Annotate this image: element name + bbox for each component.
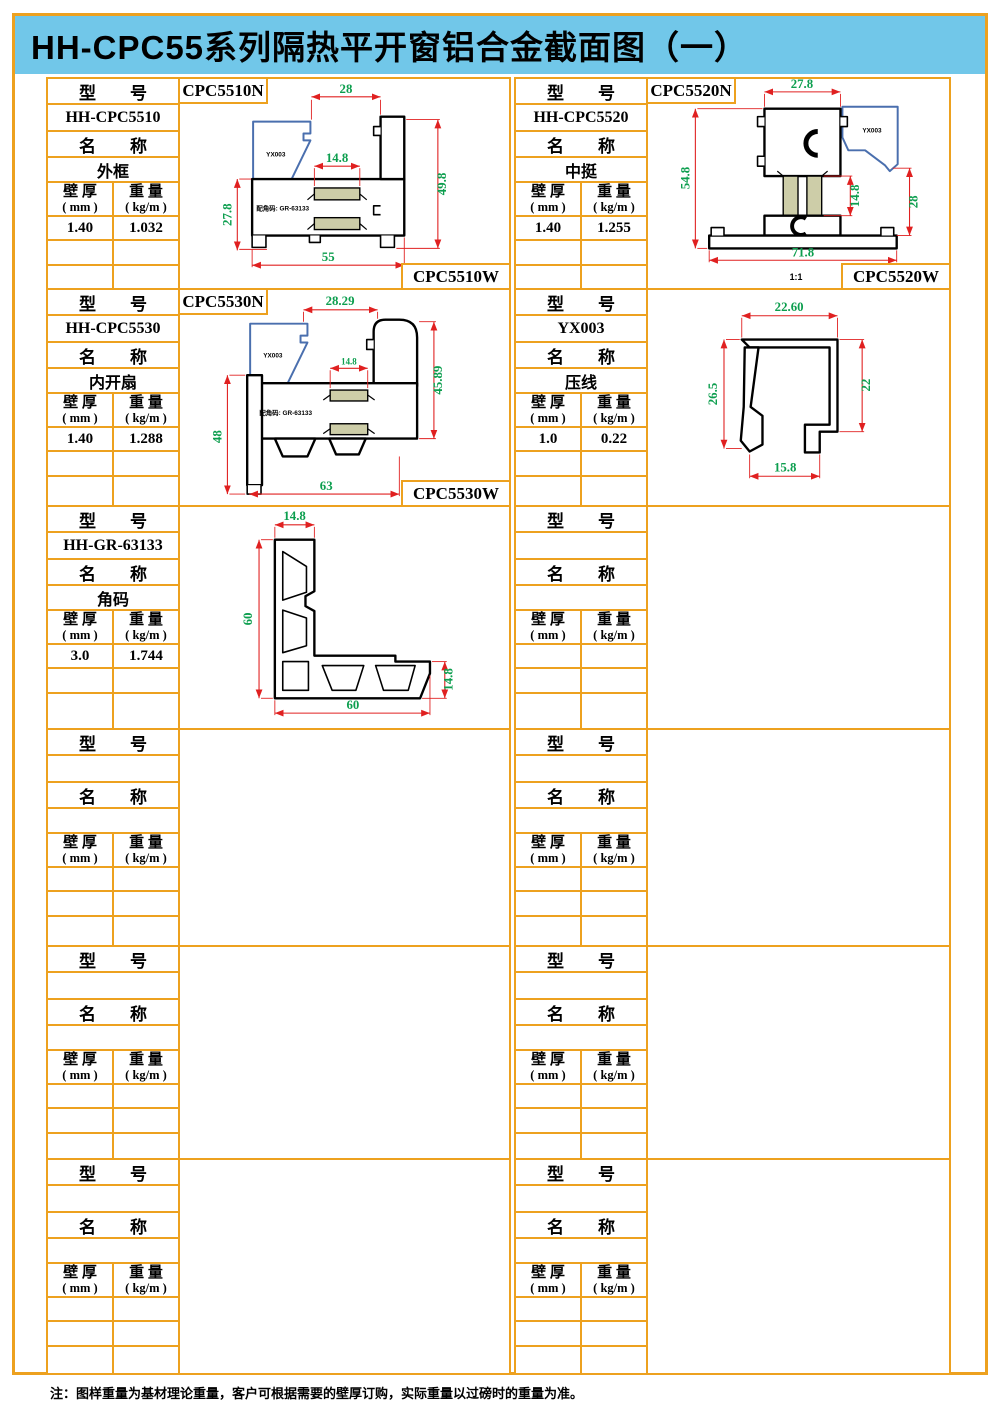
- dim-right: 49.8: [435, 173, 449, 196]
- drawing-label-n: CPC5510N: [180, 79, 268, 104]
- model-value: HH-CPC5510: [48, 105, 178, 132]
- thickness-header: 壁 厚( mm ): [48, 834, 112, 866]
- thickness-header: 壁 厚( mm ): [516, 1051, 580, 1083]
- name-value: [48, 1239, 178, 1264]
- values-row: 1.0 0.22: [516, 428, 646, 452]
- empty-row: [516, 1109, 646, 1134]
- drawing-label-n: CPC5520N: [648, 79, 736, 104]
- page-title: HH-CPC55系列隔热平开窗铝合金截面图（一）: [15, 21, 748, 69]
- drawing-area: CPC5530N CPC5530W: [180, 290, 509, 505]
- weight-header: 重 量( kg/m ): [580, 834, 646, 866]
- cross-section-cpc5510: YX003 配角码: GR-63133 28 14.8: [180, 79, 509, 288]
- name-header: 名 称: [516, 132, 646, 158]
- empty-row: [516, 477, 646, 505]
- name-header: 名 称: [48, 1000, 178, 1026]
- model-value: [48, 756, 178, 783]
- profile-outline: YX003 配角码: GR-63133: [252, 117, 404, 248]
- model-header: 型 号: [48, 290, 178, 316]
- name-value: 内开扇: [48, 369, 178, 394]
- thickness-header: 壁 厚( mm ): [516, 611, 580, 643]
- weight-header: 重 量( kg/m ): [580, 394, 646, 426]
- empty-row: [516, 266, 646, 288]
- dim-left: 27.8: [220, 203, 234, 226]
- name-value: [48, 809, 178, 834]
- empty-row: [48, 266, 178, 288]
- footer-note: 注：图样重量为基材理论重量，客户可根据需要的壁厚订购，实际重量以过磅时的重量为准…: [50, 1383, 583, 1402]
- dim-mid: 14.8: [848, 185, 862, 208]
- model-value: HH-GR-63133: [48, 533, 178, 560]
- drawing-area: CPC5520N CPC5520W: [648, 79, 949, 288]
- drawing-area: 14.8 60 14.8 60: [180, 507, 509, 728]
- profile-table: 型 号 HH-CPC5510 名 称 外框 壁 厚( mm ) 重 量( kg/…: [46, 77, 951, 1375]
- info-panel: 型 号 名 称 壁 厚( mm ) 重 量( kg/m ): [516, 507, 648, 728]
- name-header: 名 称: [48, 1213, 178, 1239]
- dim-bottom: 63: [320, 479, 333, 493]
- empty-row: [516, 1347, 646, 1373]
- model-value: [516, 533, 646, 560]
- dim-top: 28: [340, 82, 353, 96]
- profile-cell-empty: 型 号 名 称 壁 厚( mm ) 重 量( kg/m ): [46, 728, 511, 947]
- weight-header: 重 量( kg/m ): [112, 1051, 178, 1083]
- values-row: [516, 868, 646, 892]
- name-header: 名 称: [516, 783, 646, 809]
- title-bar: HH-CPC55系列隔热平开窗铝合金截面图（一）: [15, 16, 985, 74]
- bead-model-annotation: YX003: [266, 151, 286, 158]
- empty-row: [48, 694, 178, 728]
- units-header-row: 壁 厚( mm ) 重 量( kg/m ): [516, 834, 646, 868]
- name-header: 名 称: [48, 343, 178, 369]
- empty-row: [516, 1134, 646, 1158]
- units-header-row: 壁 厚( mm ) 重 量( kg/m ): [48, 834, 178, 868]
- units-header-row: 壁 厚( mm ) 重 量( kg/m ): [48, 394, 178, 428]
- name-value: 中挺: [516, 158, 646, 183]
- thickness-header: 壁 厚( mm ): [48, 1264, 112, 1296]
- thickness-value: 1.40: [48, 428, 112, 450]
- weight-header: 重 量( kg/m ): [112, 183, 178, 215]
- thickness-value: 1.0: [516, 428, 580, 450]
- model-header: 型 号: [48, 730, 178, 756]
- name-value: 压线: [516, 369, 646, 394]
- dim-right: 45.89: [431, 366, 445, 395]
- dim-left: 54.8: [678, 167, 692, 190]
- units-header-row: 壁 厚( mm ) 重 量( kg/m ): [48, 611, 178, 645]
- profile-cell-cpc5530: 型 号 HH-CPC5530 名 称 内开扇 壁 厚( mm ) 重 量( kg…: [46, 288, 511, 507]
- profile-outline: [275, 540, 430, 699]
- values-row: 3.0 1.744: [48, 645, 178, 669]
- corner-code-annotation: 配角码: GR-63133: [256, 204, 309, 213]
- dim-right: 28: [906, 195, 920, 208]
- model-header: 型 号: [516, 507, 646, 533]
- dim-top: 14.8: [283, 509, 305, 523]
- thickness-value: 1.40: [516, 217, 580, 239]
- thickness-header: 壁 厚( mm ): [516, 394, 580, 426]
- name-value: [516, 586, 646, 611]
- name-header: 名 称: [516, 560, 646, 586]
- units-header-row: 壁 厚( mm ) 重 量( kg/m ): [516, 611, 646, 645]
- info-panel: 型 号 HH-CPC5530 名 称 内开扇 壁 厚( mm ) 重 量( kg…: [48, 290, 180, 505]
- dimensions: 22.60 26.5 22 15.8: [706, 300, 873, 478]
- empty-row: [48, 477, 178, 505]
- info-panel: 型 号 HH-CPC5520 名 称 中挺 壁 厚( mm ) 重 量( kg/…: [516, 79, 648, 288]
- drawing-area: [648, 1160, 949, 1373]
- values-row: [516, 645, 646, 669]
- drawing-label-n: CPC5530N: [180, 290, 268, 315]
- model-header: 型 号: [516, 1160, 646, 1186]
- dim-top: 22.60: [775, 300, 804, 314]
- weight-value: 1.744: [112, 645, 178, 667]
- dim-left: 26.5: [706, 383, 720, 406]
- dim-mid: 14.8: [341, 356, 357, 366]
- profile-cell-cpc5520: 型 号 HH-CPC5520 名 称 中挺 壁 厚( mm ) 重 量( kg/…: [514, 77, 951, 290]
- cross-section-cpc5530: YX003 配角码: GR-63133 28.29 14.8: [180, 290, 509, 505]
- values-row: [48, 1085, 178, 1109]
- model-value: [516, 973, 646, 1000]
- name-header: 名 称: [48, 132, 178, 158]
- profile-cell-empty: 型 号 名 称 壁 厚( mm ) 重 量( kg/m ): [46, 1158, 511, 1375]
- weight-header: 重 量( kg/m ): [580, 183, 646, 215]
- empty-row: [48, 669, 178, 694]
- weight-header: 重 量( kg/m ): [112, 834, 178, 866]
- drawing-area: [180, 1160, 509, 1373]
- dim-mid: 14.8: [326, 151, 348, 165]
- cross-section-cpc5520: YX003 1:1 27.8 54.8 14.8: [648, 79, 949, 288]
- drawing-area: [648, 947, 949, 1158]
- weight-header: 重 量( kg/m ): [112, 1264, 178, 1296]
- profile-cell-empty: 型 号 名 称 壁 厚( mm ) 重 量( kg/m ): [514, 728, 951, 947]
- profile-cell-gr63133: 型 号 HH-GR-63133 名 称 角码 壁 厚( mm ) 重 量( kg…: [46, 505, 511, 730]
- values-row: [516, 1298, 646, 1322]
- model-header: 型 号: [48, 1160, 178, 1186]
- profile-cell-cpc5510: 型 号 HH-CPC5510 名 称 外框 壁 厚( mm ) 重 量( kg/…: [46, 77, 511, 290]
- empty-row: [516, 694, 646, 728]
- drawing-area: CPC5510N CPC5510W Y: [180, 79, 509, 288]
- empty-row: [516, 917, 646, 945]
- thickness-header: 壁 厚( mm ): [48, 394, 112, 426]
- weight-header: 重 量( kg/m ): [580, 1264, 646, 1296]
- values-row: 1.40 1.255: [516, 217, 646, 241]
- profile-outline: [741, 340, 838, 453]
- bead-model-annotation: YX003: [263, 352, 283, 359]
- name-value: 外框: [48, 158, 178, 183]
- empty-row: [48, 452, 178, 477]
- scale-annotation: 1:1: [790, 272, 803, 282]
- dim-left: 48: [211, 430, 225, 443]
- empty-row: [516, 1322, 646, 1347]
- catalog-page: HH-CPC55系列隔热平开窗铝合金截面图（一） 型 号 HH-CPC5510 …: [0, 0, 1000, 1415]
- model-value: [516, 756, 646, 783]
- name-value: 角码: [48, 586, 178, 611]
- thickness-header: 壁 厚( mm ): [48, 1051, 112, 1083]
- info-panel: 型 号 名 称 壁 厚( mm ) 重 量( kg/m ): [516, 730, 648, 945]
- model-value: HH-CPC5520: [516, 105, 646, 132]
- name-header: 名 称: [48, 783, 178, 809]
- name-header: 名 称: [516, 1213, 646, 1239]
- page-border: HH-CPC55系列隔热平开窗铝合金截面图（一） 型 号 HH-CPC5510 …: [12, 13, 988, 1375]
- model-header: 型 号: [516, 730, 646, 756]
- weight-header: 重 量( kg/m ): [112, 611, 178, 643]
- info-panel: 型 号 HH-CPC5510 名 称 外框 壁 厚( mm ) 重 量( kg/…: [48, 79, 180, 288]
- weight-value: 1.032: [112, 217, 178, 239]
- units-header-row: 壁 厚( mm ) 重 量( kg/m ): [516, 394, 646, 428]
- units-header-row: 壁 厚( mm ) 重 量( kg/m ): [48, 1051, 178, 1085]
- thickness-header: 壁 厚( mm ): [516, 1264, 580, 1296]
- weight-value: 1.255: [580, 217, 646, 239]
- cross-section-yx003: 22.60 26.5 22 15.8: [648, 290, 949, 505]
- empty-row: [516, 241, 646, 266]
- units-header-row: 壁 厚( mm ) 重 量( kg/m ): [48, 1264, 178, 1298]
- units-header-row: 壁 厚( mm ) 重 量( kg/m ): [48, 183, 178, 217]
- dim-bottom: 60: [346, 698, 359, 712]
- model-value: HH-CPC5530: [48, 316, 178, 343]
- model-value: YX003: [516, 316, 646, 343]
- empty-row: [48, 892, 178, 917]
- dim-bottom: 15.8: [774, 460, 796, 474]
- empty-row: [48, 1109, 178, 1134]
- drawing-label-w: CPC5510W: [401, 263, 509, 288]
- drawing-area: [648, 507, 949, 728]
- empty-row: [516, 452, 646, 477]
- thickness-value: 1.40: [48, 217, 112, 239]
- thickness-header: 壁 厚( mm ): [48, 183, 112, 215]
- empty-row: [48, 917, 178, 945]
- drawing-label-w: CPC5520W: [841, 263, 949, 288]
- info-panel: 型 号 名 称 壁 厚( mm ) 重 量( kg/m ): [48, 947, 180, 1158]
- name-value: [516, 1239, 646, 1264]
- dim-right: 22: [859, 379, 873, 392]
- model-value: [48, 973, 178, 1000]
- empty-row: [48, 241, 178, 266]
- dim-right: 14.8: [442, 668, 456, 691]
- info-panel: 型 号 HH-GR-63133 名 称 角码 壁 厚( mm ) 重 量( kg…: [48, 507, 180, 728]
- dim-top: 27.8: [791, 79, 813, 91]
- empty-row: [48, 1322, 178, 1347]
- drawing-area: [648, 730, 949, 945]
- bead-model-annotation: YX003: [862, 127, 882, 134]
- model-header: 型 号: [516, 79, 646, 105]
- empty-row: [516, 669, 646, 694]
- profile-cell-empty: 型 号 名 称 壁 厚( mm ) 重 量( kg/m ): [514, 1158, 951, 1375]
- profile-cell-yx003: 型 号 YX003 名 称 压线 壁 厚( mm ) 重 量( kg/m ) 1…: [514, 288, 951, 507]
- info-panel: 型 号 名 称 壁 厚( mm ) 重 量( kg/m ): [48, 730, 180, 945]
- name-header: 名 称: [516, 1000, 646, 1026]
- name-header: 名 称: [48, 560, 178, 586]
- weight-header: 重 量( kg/m ): [580, 611, 646, 643]
- model-header: 型 号: [48, 79, 178, 105]
- weight-value: 0.22: [580, 428, 646, 450]
- model-value: [516, 1186, 646, 1213]
- values-row: 1.40 1.288: [48, 428, 178, 452]
- name-header: 名 称: [516, 343, 646, 369]
- weight-header: 重 量( kg/m ): [580, 1051, 646, 1083]
- corner-code-annotation: 配角码: GR-63133: [259, 408, 312, 417]
- values-row: [516, 1085, 646, 1109]
- model-header: 型 号: [48, 947, 178, 973]
- drawing-area: 22.60 26.5 22 15.8: [648, 290, 949, 505]
- units-header-row: 壁 厚( mm ) 重 量( kg/m ): [516, 183, 646, 217]
- name-value: [516, 809, 646, 834]
- values-row: [48, 868, 178, 892]
- units-header-row: 壁 厚( mm ) 重 量( kg/m ): [516, 1051, 646, 1085]
- info-panel: 型 号 名 称 壁 厚( mm ) 重 量( kg/m ): [516, 947, 648, 1158]
- thickness-header: 壁 厚( mm ): [516, 183, 580, 215]
- info-panel: 型 号 YX003 名 称 压线 壁 厚( mm ) 重 量( kg/m ) 1…: [516, 290, 648, 505]
- drawing-label-w: CPC5530W: [401, 480, 509, 505]
- cross-section-gr63133: 14.8 60 14.8 60: [180, 507, 509, 728]
- model-header: 型 号: [48, 507, 178, 533]
- profile-cell-empty: 型 号 名 称 壁 厚( mm ) 重 量( kg/m ): [514, 945, 951, 1160]
- thickness-value: 3.0: [48, 645, 112, 667]
- empty-row: [48, 1134, 178, 1158]
- model-value: [48, 1186, 178, 1213]
- weight-header: 重 量( kg/m ): [112, 394, 178, 426]
- thickness-header: 壁 厚( mm ): [48, 611, 112, 643]
- model-header: 型 号: [516, 290, 646, 316]
- info-panel: 型 号 名 称 壁 厚( mm ) 重 量( kg/m ): [48, 1160, 180, 1373]
- dim-top: 28.29: [326, 294, 355, 308]
- drawing-area: [180, 947, 509, 1158]
- dim-left: 60: [241, 613, 255, 626]
- model-header: 型 号: [516, 947, 646, 973]
- profile-cell-empty: 型 号 名 称 壁 厚( mm ) 重 量( kg/m ): [514, 505, 951, 730]
- units-header-row: 壁 厚( mm ) 重 量( kg/m ): [516, 1264, 646, 1298]
- drawing-area: [180, 730, 509, 945]
- empty-row: [48, 1347, 178, 1373]
- profile-cell-empty: 型 号 名 称 壁 厚( mm ) 重 量( kg/m ): [46, 945, 511, 1160]
- dim-bottom: 55: [322, 250, 335, 264]
- empty-row: [516, 892, 646, 917]
- thickness-header: 壁 厚( mm ): [516, 834, 580, 866]
- profile-outline: YX003 配角码: GR-63133: [247, 320, 417, 494]
- name-value: [48, 1026, 178, 1051]
- name-value: [516, 1026, 646, 1051]
- info-panel: 型 号 名 称 壁 厚( mm ) 重 量( kg/m ): [516, 1160, 648, 1373]
- values-row: 1.40 1.032: [48, 217, 178, 241]
- dim-bottom: 71.8: [792, 245, 814, 259]
- weight-value: 1.288: [112, 428, 178, 450]
- values-row: [48, 1298, 178, 1322]
